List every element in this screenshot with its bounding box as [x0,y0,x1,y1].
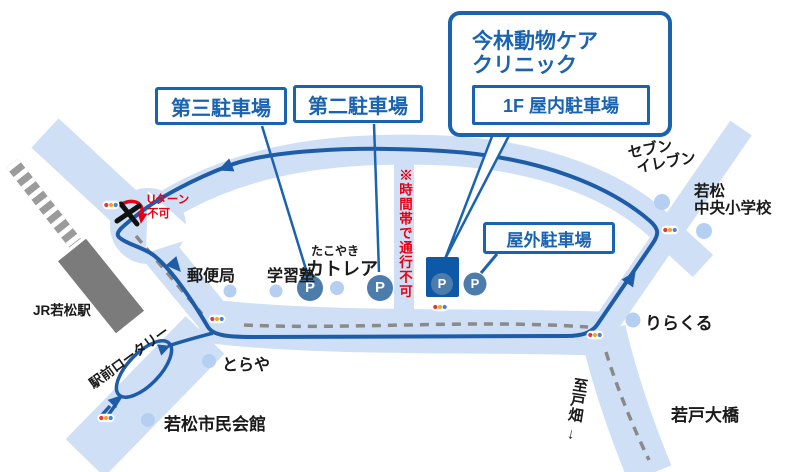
access-map: 今林動物ケア クリニック 1F 屋内駐車場 第三駐車場 第二駐車場 屋外駐車場 … [0,0,790,472]
road-top [128,150,703,266]
rirakuru-label: りらくる [645,309,713,334]
indoor-parking-label: 1F 屋内駐車場 [472,85,650,125]
to-tobata-arrow-icon: ↓ [566,425,576,443]
school-dot [696,223,712,239]
takoyaki-label: カトレア [306,255,378,281]
toraya-label: とらや [222,351,270,375]
no-uturn-line1: Uターン [147,194,189,206]
indoor-parking-letter: P [430,276,454,291]
traffic-light-icon [98,414,115,423]
traffic-light-icon [209,315,226,324]
seven-eleven-dot [654,194,670,210]
outdoor-parking-box: 屋外駐車場 [483,222,615,254]
no-uturn-line2: 不可 [147,208,170,220]
outdoor-parking-letter: P [463,276,487,291]
third-parking-box: 第三駐車場 [155,87,287,125]
school-label: 若松 中央小学校 [694,184,772,217]
second-parking-box: 第二駐車場 [293,85,423,123]
clinic-name-line2: クリニック [472,49,577,79]
civic-hall-dot [141,413,155,427]
no-uturn-label: Uターン 不可 [147,194,189,222]
traffic-light-icon [103,201,120,210]
traffic-light-icon [432,303,449,312]
clinic-callout: 今林動物ケア クリニック 1F 屋内駐車場 [448,11,672,137]
post-office-label: 郵便局 [187,262,235,286]
post-office-dot [224,285,237,298]
takoyaki-dot [330,281,344,295]
traffic-light-icon [587,331,604,340]
cram-school-dot [270,285,283,298]
bridge-label: 若戸大橋 [671,401,739,426]
civic-hall-label: 若松市民会館 [164,410,266,435]
road-bridge [603,330,650,472]
station-label: JR若松駅 [33,299,91,319]
school-line1: 若松 [694,183,725,200]
time-restricted-warning: ※時間帯で通行不可 [394,168,414,299]
rirakuru-dot [626,313,641,328]
school-line2: 中央小学校 [694,200,772,217]
traffic-light-icon [662,226,679,235]
second-parking-letter: P [368,279,392,296]
toraya-dot [202,354,216,368]
